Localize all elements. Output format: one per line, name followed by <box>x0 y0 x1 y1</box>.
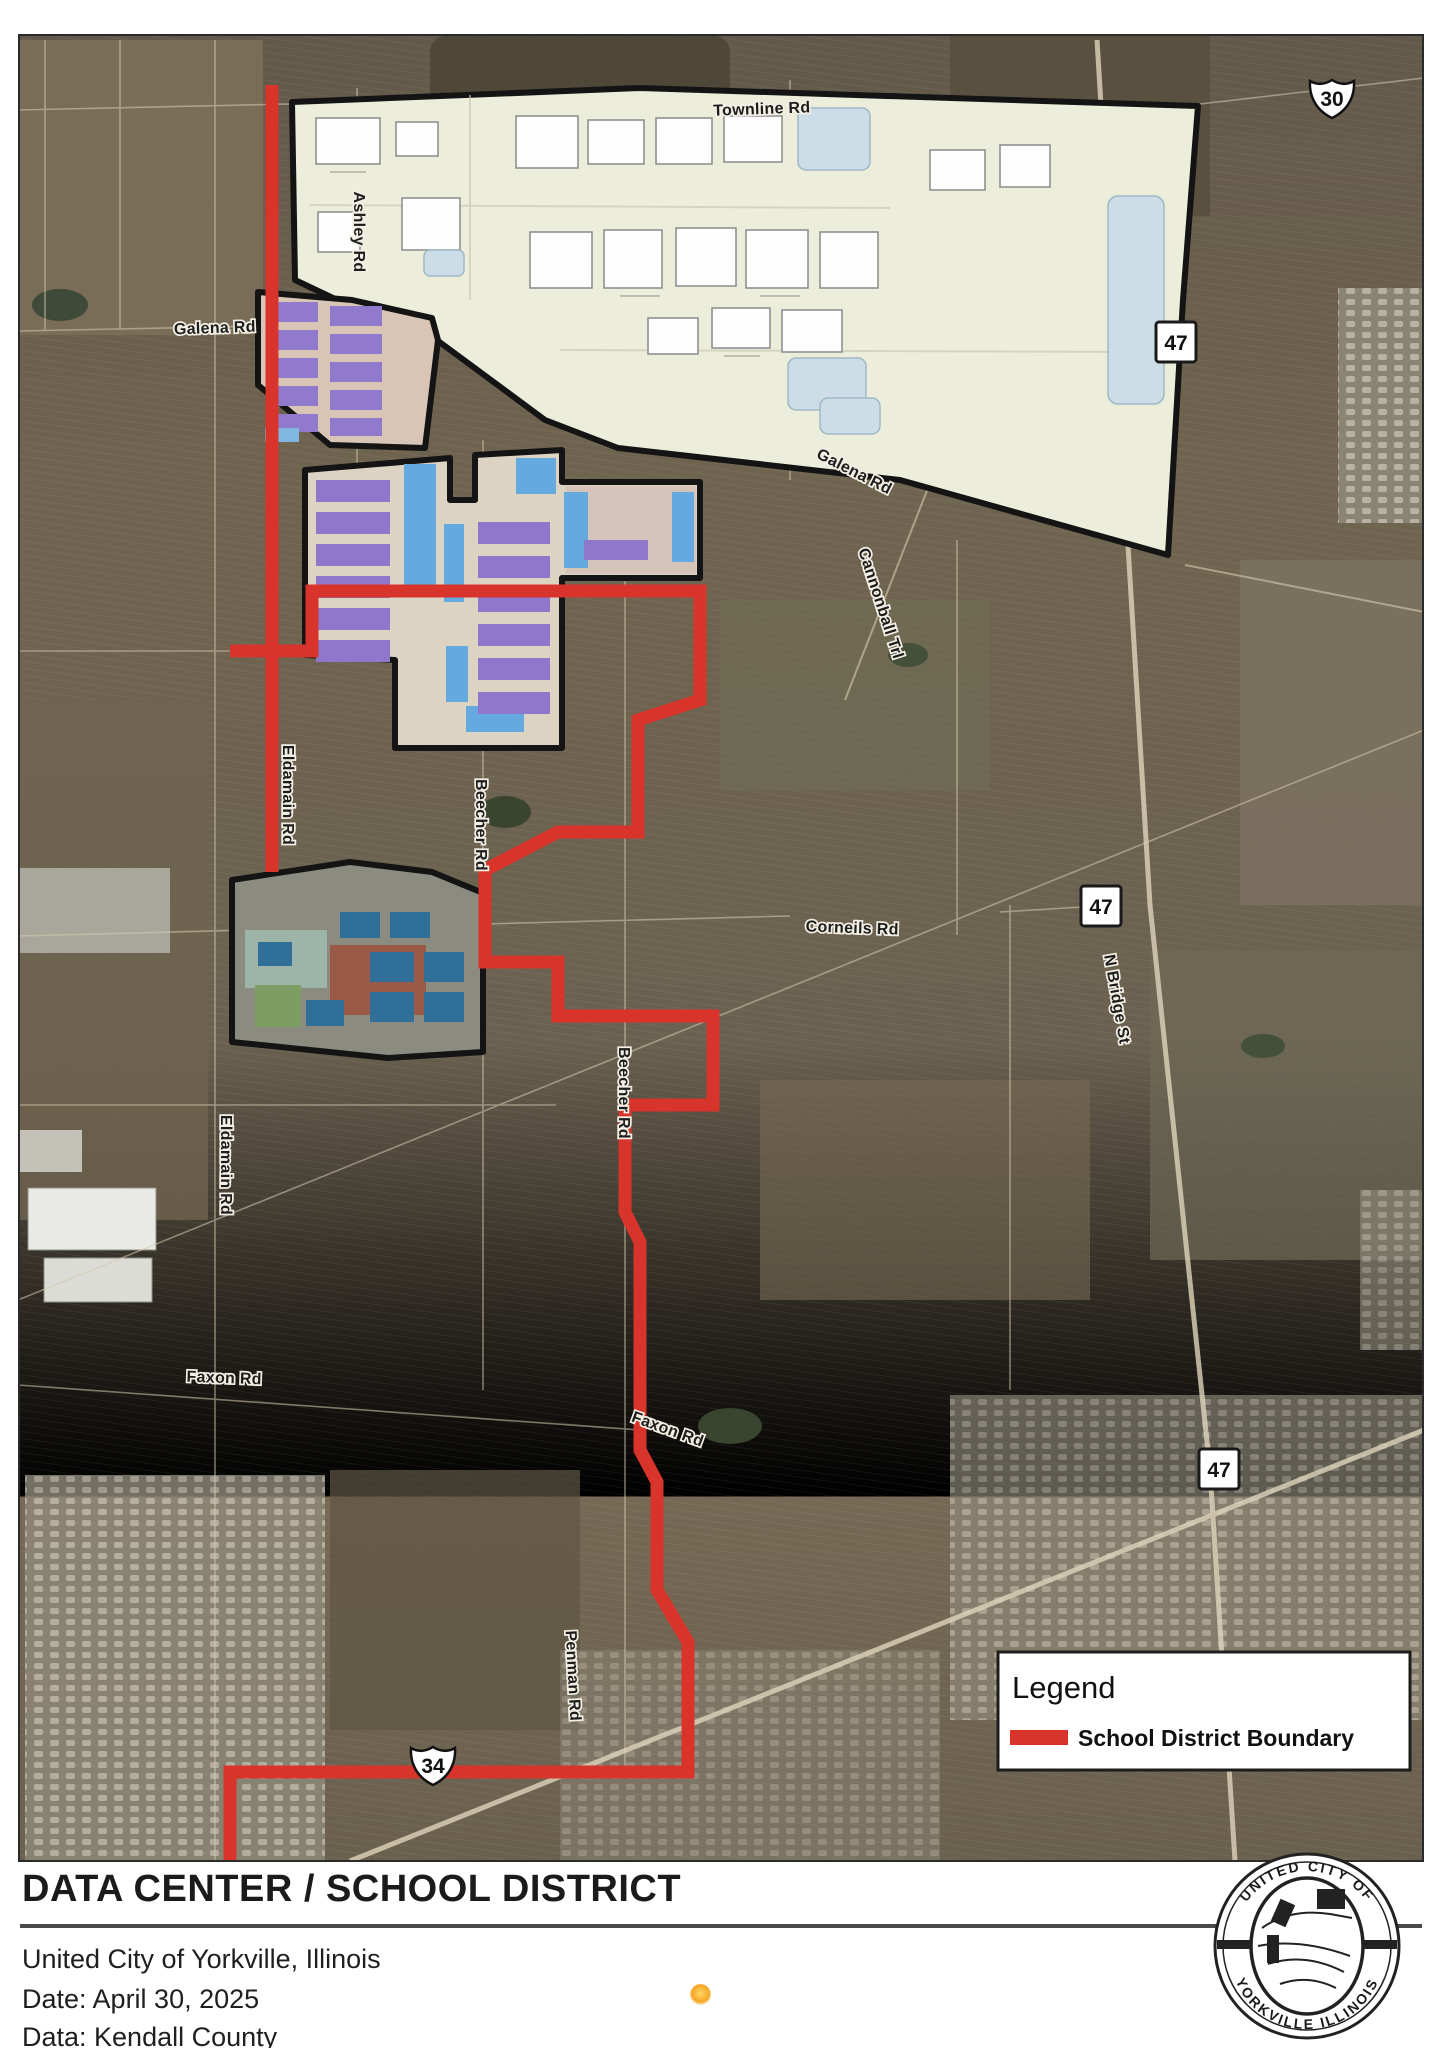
route-shield-il47-north: 47 <box>1156 322 1196 362</box>
legend-title: Legend <box>1012 1670 1115 1705</box>
subtitle-location: United City of Yorkville, Illinois <box>22 1944 381 1975</box>
legend-item-label: School District Boundary <box>1078 1725 1354 1751</box>
shield-number: 47 <box>1089 896 1112 919</box>
legend-box: Legend School District Boundary <box>998 1652 1410 1770</box>
subdivision-patch <box>25 1475 325 1860</box>
shield-number: 47 <box>1164 332 1187 355</box>
shield-number: 34 <box>421 1755 445 1778</box>
parcel-south <box>232 862 483 1058</box>
subtitle-date: Date: April 30, 2025 <box>22 1984 259 2015</box>
map-viewport: Townline Rd Ashley Rd Galena Rd Galena R… <box>18 34 1424 1862</box>
road-label-townline-rd: Townline Rd <box>713 99 811 119</box>
subtitle-data-source: Data: Kendall County <box>22 2022 277 2048</box>
road-label-ashley-rd: Ashley Rd <box>350 192 367 273</box>
map-canvas: Townline Rd Ashley Rd Galena Rd Galena R… <box>18 34 1424 1862</box>
city-seal: UNITED CITY OF YORKVILLE ILLINOIS <box>1204 1846 1416 2048</box>
route-shield-il47-mid: 47 <box>1081 886 1121 926</box>
subdivision-patch <box>1360 1190 1424 1350</box>
subdivision-patch <box>1338 288 1424 523</box>
shield-number: 30 <box>1320 88 1343 111</box>
road-label-eldamain-rd: Eldamain Rd <box>217 1115 234 1215</box>
shield-number: 47 <box>1207 1459 1230 1482</box>
route-shield-il47-south: 47 <box>1199 1449 1239 1489</box>
legend-swatch-boundary <box>1010 1730 1068 1745</box>
parcel-west-solar <box>258 292 438 448</box>
road-label-eldamain-rd: Eldamain Rd <box>279 745 296 845</box>
road-label-galena-rd: Galena Rd <box>174 319 256 339</box>
road-label-corneils-rd: Corneils Rd <box>805 918 899 938</box>
road-label-beecher-rd: Beecher Rd <box>472 779 489 871</box>
road-label-faxon-rd: Faxon Rd <box>186 1369 262 1389</box>
page-title: DATA CENTER / SCHOOL DISTRICT <box>22 1868 681 1911</box>
road-label-beecher-rd: Beecher Rd <box>615 1047 632 1139</box>
map-export-page: Townline Rd Ashley Rd Galena Rd Galena R… <box>0 0 1440 2048</box>
orange-marker-dot <box>690 1984 711 2005</box>
